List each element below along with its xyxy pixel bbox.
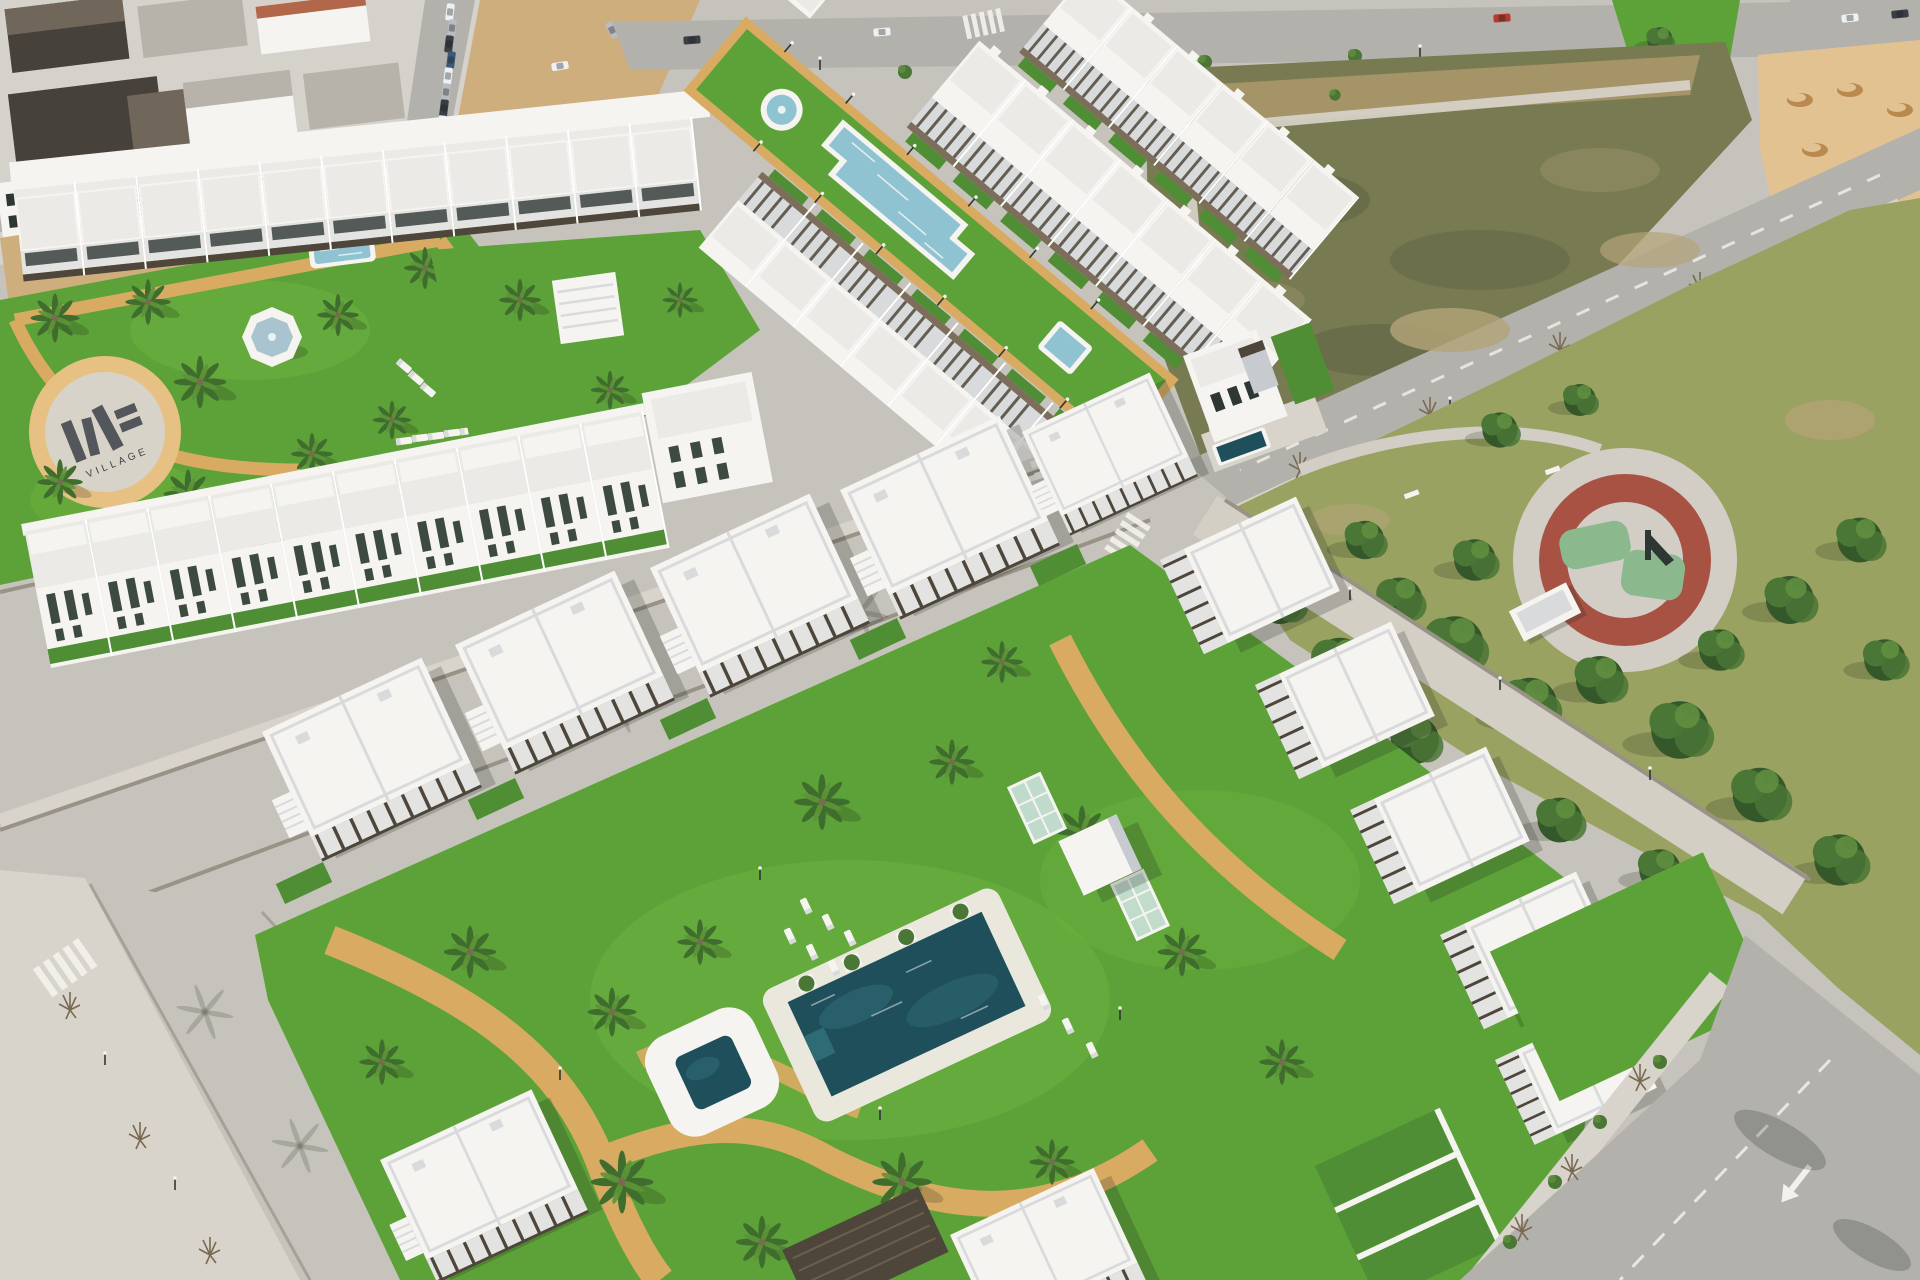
stair-bridge	[552, 272, 624, 344]
corner-apartment	[642, 372, 773, 503]
aerial-render: VILLAGE	[0, 0, 1920, 1280]
red-car	[1493, 13, 1511, 22]
plaza-with-logo: VILLAGE	[29, 356, 181, 508]
aerial-render-stage: VILLAGE	[0, 0, 1920, 1280]
